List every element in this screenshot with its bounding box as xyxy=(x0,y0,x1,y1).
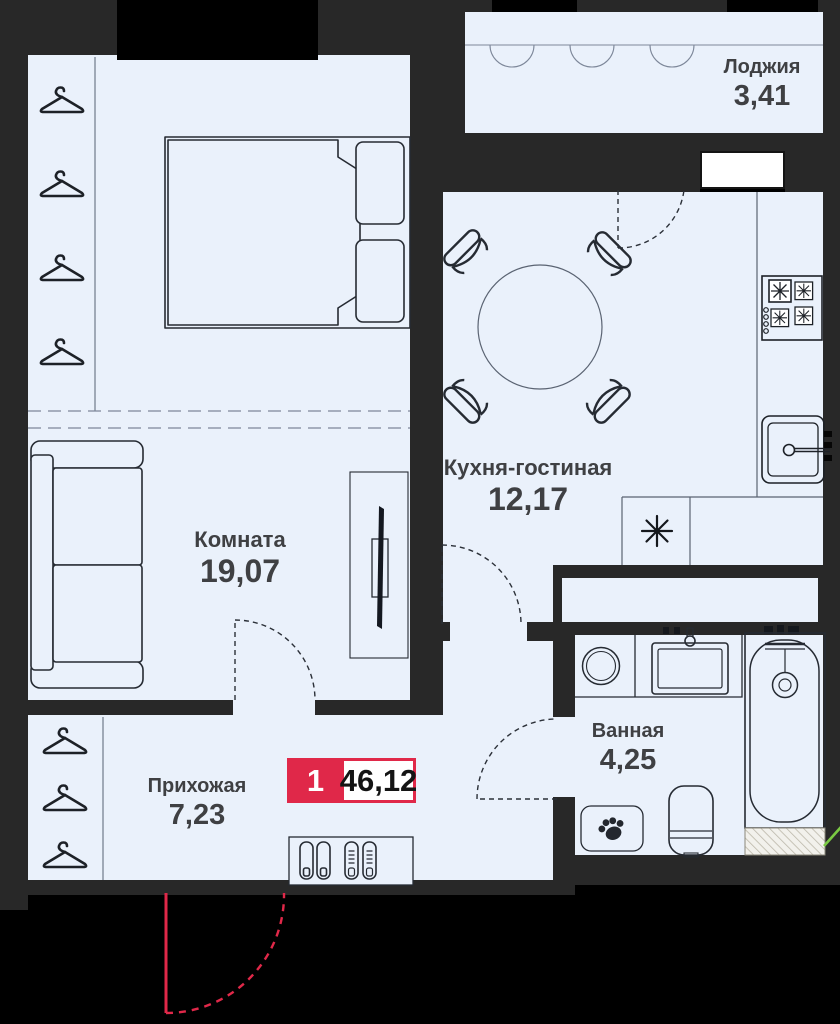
room-label-kitchen: Кухня-гостиная 12,17 xyxy=(444,456,613,517)
wall xyxy=(0,0,28,910)
rooms-count-badge: 1 xyxy=(287,758,344,803)
wall xyxy=(700,133,785,152)
kitchen-door-opening xyxy=(450,622,527,641)
wall xyxy=(823,0,840,140)
bathroom-door-opening xyxy=(553,717,575,797)
room-name: Лоджия xyxy=(724,57,801,78)
room-label-loggia: Лоджия 3,41 xyxy=(724,57,801,111)
floor-plan: Комната 19,07 Кухня-гостиная 12,17 Прихо… xyxy=(0,0,840,1024)
room-name: Кухня-гостиная xyxy=(444,456,613,479)
room-area: 4,25 xyxy=(592,745,665,775)
duct-shaft xyxy=(562,578,818,622)
loggia-window xyxy=(492,0,577,12)
room-label-hallway: Прихожая 7,23 xyxy=(148,776,247,830)
room-area: 7,23 xyxy=(148,800,247,830)
room-name: Ванная xyxy=(592,721,665,742)
room-area: 3,41 xyxy=(724,81,801,111)
room-name: Комната xyxy=(194,528,285,551)
apartment-badge: 1 46,12 xyxy=(287,758,416,803)
balcony-door xyxy=(700,151,785,189)
room-area: 12,17 xyxy=(444,483,613,517)
wall xyxy=(818,578,840,622)
hallway-floor xyxy=(443,641,553,715)
room-label-bathroom: Ванная 4,25 xyxy=(592,721,665,775)
bedroom-floor xyxy=(28,55,410,700)
wall xyxy=(410,133,700,192)
wall xyxy=(553,855,840,885)
wall xyxy=(575,622,840,635)
kitchen-floor xyxy=(443,192,553,622)
wall xyxy=(823,240,840,885)
bedroom-door-opening xyxy=(233,700,315,715)
room-name: Прихожая xyxy=(148,776,247,797)
entrance-door-swing xyxy=(166,893,284,1013)
room-area: 19,07 xyxy=(194,555,285,589)
loggia-window xyxy=(727,0,818,12)
total-area-badge: 46,12 xyxy=(344,758,416,803)
bedroom-window xyxy=(117,0,318,60)
wall xyxy=(0,880,575,895)
room-label-bedroom: Комната 19,07 xyxy=(194,528,285,589)
wall xyxy=(553,565,840,578)
